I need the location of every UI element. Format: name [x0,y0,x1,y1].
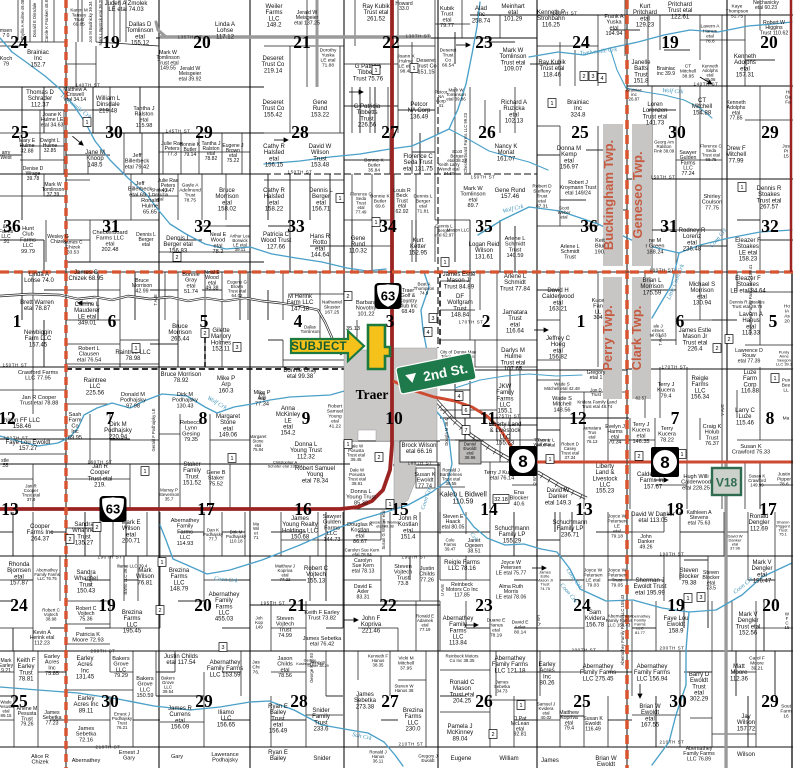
svg-text:Robert LClausenetal 76.54: Robert LClausenetal 76.54 [77,346,102,363]
svg-text:Mark VDenglerTrust etal152.56: Mark VDenglerTrust etal152.56 [736,612,761,636]
svg-text:29: 29 [195,122,213,142]
svg-text:29: 29 [761,691,779,711]
svg-text:Carol FMoore39.21: Carol FMoore39.21 [749,656,765,672]
svg-text:Patricia KMoore 72.93: Patricia KMoore 72.93 [72,632,103,644]
svg-text:1: 1 [375,220,378,226]
svg-text:Trevor LWulf etal: Trevor LWulf etal [533,438,550,448]
svg-text:34: 34 [379,216,397,236]
svg-text:Mason LLC: Mason LLC [447,228,469,233]
svg-text:NathanielSkuster167.25: NathanielSkuster167.25 [322,300,342,316]
svg-text:8: 8 [766,408,775,428]
svg-text:SawyerGuldenFarmsLLC144.73: SawyerGuldenFarmsLLC144.73 [323,514,342,543]
svg-text:BakersGroveLLC150.59: BakersGroveLLC150.59 [136,676,154,699]
svg-text:Q WY: Q WY [536,614,541,625]
svg-text:1: 1 [86,120,89,126]
svg-text:1: 1 [13,311,22,331]
svg-text:21: 21 [293,32,311,52]
svg-text:Buckingham Twp.: Buckingham Twp. [601,140,616,250]
svg-text:N AVE: N AVE [88,574,93,586]
svg-text:Jon M Budnicky 39.34: Jon M Budnicky 39.34 [88,1,93,43]
svg-text:10: 10 [385,408,403,428]
svg-text:22: 22 [382,32,400,52]
svg-text:JohKop149: JohKop149 [255,616,263,630]
svg-text:1: 1 [444,260,447,266]
svg-text:Wade SMitchell148.56: Wade SMitchell148.56 [552,396,572,413]
svg-text:8: 8 [660,453,669,472]
svg-text:GiletteMarjoryHolmes152.11: GiletteMarjoryHolmes152.11 [211,328,231,352]
svg-text:25: 25 [573,691,591,711]
svg-text:T AVE: T AVE [658,334,663,346]
svg-text:28: 28 [290,691,308,711]
svg-text:Jan R CooperTrust etal 78.88: Jan R CooperTrust etal 78.88 [20,395,59,407]
svg-text:Brian WEwoldt: Brian WEwoldt [595,756,617,768]
svg-text:2: 2 [159,608,162,614]
svg-text:JasonChildsetal78.56: JasonChildsetal78.56 [277,656,293,679]
svg-text:2: 2 [347,294,350,300]
svg-text:27: 27 [381,691,399,711]
svg-text:210TH ST: 210TH ST [399,742,424,747]
svg-text:Kridera Family LandTrust etal: Kridera Family LandTrust etal 48.74 [577,400,617,410]
svg-text:150TH ST: 150TH ST [471,175,496,180]
svg-text:Iliamo LLC 39.4: Iliamo LLC 39.4 [117,564,148,569]
svg-text:Florence CSeda Trustetal 131.7: Florence CSeda Trustetal 131.75 [403,154,433,172]
svg-text:Abernathey: Abernathey [72,758,101,764]
svg-text:JamesSebetka273.38: JamesSebetka273.38 [354,692,377,710]
svg-text:Terry JKuceraetal146.35: Terry JKuceraetal146.35 [632,422,651,445]
svg-text:KuceFanLL304: KuceFanLL304 [592,298,605,321]
svg-text:200TH ST: 200TH ST [660,646,685,651]
svg-text:BarbaraNovotny101.22: BarbaraNovotny101.22 [356,300,377,317]
svg-text:5: 5 [769,311,778,331]
svg-text:DeseretTrust Co151.15: DeseretTrust Co151.15 [415,58,436,75]
svg-text:Robert CVojtech155.13: Robert CVojtech155.13 [304,566,329,584]
svg-text:Kathleen AStevensetal 75.63: Kathleen AStevensetal 75.63 [686,510,712,527]
svg-text:Donald E Dinsdale: Donald E Dinsdale [32,2,37,37]
svg-text:Eugene: Eugene [451,756,472,762]
svg-text:190TH ST: 190TH ST [660,552,685,557]
svg-text:63: 63 [381,289,395,304]
svg-text:Mark L Bystrck etal 39.25: Mark L Bystrck etal 39.25 [98,0,103,46]
svg-text:2: 2 [492,732,495,738]
svg-text:Mark WTomlinsonetal 39.86: Mark WTomlinsonetal 39.86 [446,88,466,102]
svg-text:27: 27 [381,122,399,142]
svg-text:1: 1 [389,502,392,508]
svg-text:Susan KEwoldt116.49: Susan KEwoldt116.49 [583,716,603,733]
svg-text:AbernatheyFamily FarmsLLC 76.8: AbernatheyFamily FarmsLLC 76.89 [683,746,715,763]
svg-text:2: 2 [728,337,731,343]
svg-text:Nechanickyetal 60.23: Nechanickyetal 60.23 [753,0,779,11]
svg-text:82.57: 82.57 [636,396,648,401]
svg-text:SUBJECT: SUBJECT [291,341,347,353]
svg-text:Reinbeck MotorsCo Inc 38.35: Reinbeck MotorsCo Inc 38.35 [446,654,480,664]
svg-text:AbernatheyFamily FarmsLLC 121.: AbernatheyFamily FarmsLLC 121.18 [492,656,528,674]
svg-text:JasChi76.: JasChi76. [252,660,260,676]
svg-text:2: 2 [69,537,72,543]
svg-text:1: 1 [774,376,777,382]
svg-text:1: 1 [687,596,690,602]
svg-text:210TH ST: 210TH ST [96,745,121,750]
svg-text:1: 1 [741,185,744,191]
svg-text:170TH ST: 170TH ST [459,320,484,325]
svg-text:RobertSamuelYoungetal41.22: RobertSamuelYoungetal41.22 [327,404,343,430]
svg-text:1: 1 [144,469,147,475]
svg-text:1: 1 [520,703,523,709]
svg-text:Sherman JEwoldt Trustetal 195.: Sherman JEwoldt Trustetal 195.99 [633,578,666,596]
svg-text:32.18: 32.18 [494,497,508,503]
svg-text:Geneseo Twp.: Geneseo Twp. [630,151,645,238]
svg-text:KeitBlur190.: KeitBlur190. [595,238,606,255]
svg-text:Darlys MHulmeTrust etal107.65: Darlys MHulmeTrust etal107.65 [501,348,526,372]
svg-text:JKWFamilyFarmsLLC155.1: JKWFamilyFarmsLLC155.1 [496,384,514,414]
svg-text:150TH ST: 150TH ST [651,175,676,180]
svg-text:Judeh A ZmolekLE etal 74.03: Judeh A ZmolekLE etal 74.03 [105,1,149,13]
svg-text:Hugh WilliCalderwoodetal 228.2: Hugh WilliCalderwoodetal 228.25 [681,474,711,491]
svg-text:31: 31 [660,216,678,236]
svg-text:1: 1 [161,560,164,566]
svg-text:Ma: Ma [783,416,790,422]
svg-text:Gerald F Podhajsky LE: Gerald F Podhajsky LE [151,408,156,451]
svg-text:2: 2 [378,455,381,461]
svg-text:Jon DTrust: Jon DTrust [590,388,601,398]
svg-text:4: 4 [601,76,604,82]
svg-text:GeneRund153.22: GeneRund153.22 [311,100,330,118]
svg-text:29: 29 [761,122,779,142]
svg-text:190TH ST: 190TH ST [402,555,427,560]
svg-text:V AVE: V AVE [720,404,725,416]
svg-text:stle.55: stle.55 [1,458,9,469]
svg-text:Corrine LMaudererLE etal349.01: Corrine LMaudererLE etal349.01 [74,302,100,326]
svg-text:17: 17 [197,499,215,519]
svg-text:William LDinsdale219.48: William LDinsdale219.48 [96,96,121,114]
svg-text:Joane KHulme LEetal 34.63: Joane KHulme LEetal 34.63 [41,112,64,129]
svg-text:35: 35 [475,216,493,236]
svg-text:PritchardTrust etal122.61: PritchardTrust etal122.61 [668,2,693,20]
svg-text:Arlene LSchmidtTrust140.59: Arlene LSchmidtTrust140.59 [505,236,526,259]
svg-text:John FKopriva221.46: John FKopriva221.46 [361,616,382,634]
svg-text:3: 3 [386,311,395,331]
svg-text:150TH ST: 150TH ST [288,170,313,175]
svg-text:Dougla M 38.4: Dougla M 38.4 [444,418,449,446]
svg-text:Abernathey Family Farms LLC 15: Abernathey Family Farms LLC 155.43 [620,594,625,665]
svg-text:3: 3 [700,595,703,601]
svg-text:U AVE: U AVE [440,584,445,596]
svg-text:26: 26 [475,691,493,711]
svg-text:MarkWilson76.81: MarkWilson76.81 [136,568,154,586]
svg-text:Ryan EBailey: Ryan EBailey [268,750,288,762]
svg-text:T AVE: T AVE [153,294,158,306]
svg-text:23: 23 [475,595,493,615]
svg-text:AbernatheyFamily FarmsLLC 76.7: AbernatheyFamily FarmsLLC 76.75 [34,567,59,581]
svg-text:BakersGroveLLC79.29: BakersGroveLLC79.29 [112,656,130,679]
svg-text:CarolynSue Kernetal 78.13: CarolynSue Kernetal 78.13 [352,558,375,575]
svg-text:Checkerboard Farms LLC 99.23: Checkerboard Farms LLC 99.23 [463,112,468,172]
svg-text:140TH ST: 140TH ST [694,82,719,87]
svg-text:Susan G Warner etal: Susan G Warner etal [381,510,386,549]
svg-text:Nancy KMonat161.07: Nancy KMonat161.07 [495,144,518,162]
svg-text:28: 28 [291,122,309,142]
svg-text:William: William [499,756,518,762]
svg-text:Justin Childsetal 117.54: Justin Childsetal 117.54 [164,654,198,666]
svg-text:145TH ST: 145TH ST [166,129,191,134]
svg-text:200TH ST: 200TH ST [572,648,597,653]
svg-text:30: 30 [669,691,687,711]
svg-text:22: 22 [379,595,397,615]
svg-text:Clark Twp.: Clark Twp. [629,306,644,371]
svg-text:33: 33 [287,216,305,236]
svg-text:29: 29 [195,691,213,711]
svg-text:24: 24 [10,595,28,615]
svg-text:2: 2 [96,525,99,531]
svg-text:19: 19 [98,595,116,615]
svg-text:GeneRund110.32: GeneRund110.32 [349,236,368,254]
svg-text:4: 4 [427,330,430,336]
svg-text:PetcorNA Corp136.49: PetcorNA Corp136.49 [408,102,431,120]
svg-text:9: 9 [302,408,311,428]
svg-text:Craig KHolubTrust76.37: Craig KHolubTrust76.37 [703,424,722,447]
svg-text:3: 3 [236,345,239,351]
svg-text:Keith F EarleyTrust 73.82: Keith F EarleyTrust 73.82 [304,610,339,622]
svg-text:1: 1 [551,101,554,107]
svg-text:20: 20 [762,595,780,615]
svg-text:Wilson: Wilson [737,752,755,758]
svg-text:1: 1 [577,311,586,331]
svg-text:30: 30 [101,691,119,711]
svg-text:160TH ST: 160TH ST [650,268,675,273]
svg-text:George K 27.93: George K 27.93 [309,653,314,683]
svg-text:DeseretTrust Co155.42: DeseretTrust Co155.42 [262,100,285,118]
svg-text:1: 1 [681,452,684,458]
svg-text:James EstleMason JrTrust 84.89: James EstleMason JrTrust 84.89 [443,272,476,290]
svg-text:Reigle FarmsLLC 78.16: Reigle FarmsLLC 78.16 [444,560,480,572]
svg-text:SniderFamilyTrust233.6: SniderFamilyTrust233.6 [312,708,330,732]
svg-text:Gary: Gary [171,754,183,760]
svg-text:Neal EWoodetal49.38: Neal EWoodetal49.38 [204,270,220,292]
svg-text:Frank AYuskaetal194.94: Frank AYuskaetal194.94 [604,14,624,37]
svg-text:195TH ST: 195TH ST [261,601,286,606]
svg-text:8: 8 [518,452,527,471]
svg-text:LawerancePodhajsky: LawerancePodhajsky [211,752,238,764]
svg-text:SawyerGuldenFarmsLLC77.24: SawyerGuldenFarmsLLC77.24 [679,150,697,177]
svg-text:1: 1 [413,66,416,72]
svg-text:JustinChilds77.26: JustinChilds77.26 [419,566,435,583]
svg-text:AbernatheyFamily FarmsLLC 153.: AbernatheyFamily FarmsLLC 153.59 [207,660,243,678]
svg-text:AbernatheyFamily FarmsLLC 275.: AbernatheyFamily FarmsLLC 275.45 [580,664,616,682]
svg-text:6: 6 [108,311,117,331]
svg-text:185TH ST: 185TH ST [408,461,433,466]
svg-text:1: 1 [347,442,350,448]
svg-text:Traer: Traer [356,387,389,402]
svg-text:19: 19 [661,32,679,52]
svg-text:130TH ST: 130TH ST [406,34,431,39]
svg-text:Vicki MMitchell37.95: Vicki MMitchell37.95 [398,656,414,672]
svg-text:Linda ALohse117.12: Linda ALohse117.12 [215,22,235,40]
svg-text:Tantha JRalstonetal115.98: Tantha JRalstonetal115.98 [133,106,154,129]
svg-text:StevenBlocker79.38: StevenBlocker79.38 [679,568,699,586]
svg-text:Snider: Snider [313,756,330,762]
svg-text:Iliamo LLC 39.4: Iliamo LLC 39.4 [123,565,128,595]
svg-text:1: 1 [231,456,234,462]
svg-text:1: 1 [339,196,342,202]
svg-text:36: 36 [580,216,598,236]
svg-text:135TH ST: 135TH ST [178,35,203,40]
svg-text:6: 6 [465,408,468,414]
svg-text:30: 30 [105,122,123,142]
svg-text:200TH ST: 200TH ST [91,649,116,654]
svg-text:Brainiacinc 39.9: Brainiacinc 39.9 [657,66,676,77]
svg-text:James: James [541,758,559,764]
svg-text:AbernatheyFamily FarmsLLC 156.: AbernatheyFamily FarmsLLC 156.94 [634,664,670,682]
svg-text:210TH ST: 210TH ST [660,740,685,745]
svg-text:DeseretTrust Co219.14: DeseretTrust Co219.14 [262,56,285,74]
svg-text:150TH ST: 150TH ST [3,363,28,368]
svg-text:2: 2 [176,255,179,261]
svg-text:Mary EHulme32.88: Mary EHulme32.88 [19,138,36,155]
svg-text:V18: V18 [716,476,738,490]
svg-text:HoIAAs20: HoIAAs20 [784,304,790,325]
svg-text:Brock Wilsonetal 66.16: Brock Wilsonetal 66.16 [401,443,436,455]
svg-text:Jerald WMeisgeieretal 39.92: Jerald WMeisgeieretal 39.92 [179,66,202,83]
svg-text:1: 1 [549,457,552,463]
svg-text:Abernathey Family Farms LLC 15: Abernathey Family Farms LLC 158.41 [748,264,753,335]
svg-text:Gene BStaker75.52: Gene BStaker75.52 [207,470,226,487]
svg-text:2: 2 [716,346,719,352]
svg-text:DanielEwoldtetal38.96: DanielEwoldtetal38.96 [463,442,477,461]
svg-text:7: 7 [465,428,468,434]
svg-text:1: 1 [135,346,138,352]
svg-text:HuntClubFarmsLLC99.79: HuntClubFarmsLLC99.79 [20,226,36,255]
svg-text:23: 23 [475,32,493,52]
svg-text:KubikTrustetal79.77: KubikTrustetal79.77 [440,6,454,29]
svg-text:StevenVojtechTrust74.99: StevenVojtechTrust74.99 [276,616,294,639]
svg-text:2: 2 [583,74,586,80]
svg-text:19: 19 [667,595,685,615]
svg-text:24: 24 [572,32,590,52]
svg-text:Drew FMitchell77.99: Drew FMitchell77.99 [726,146,746,164]
svg-text:4: 4 [458,394,461,400]
svg-text:Jane MKnoop148.5: Jane MKnoop148.5 [85,150,105,168]
svg-text:2: 2 [204,331,207,337]
svg-text:Alice RChizek: Alice RChizek [31,754,49,766]
svg-text:21: 21 [288,595,306,615]
svg-text:13: 13 [1,499,19,519]
svg-text:19: 19 [102,32,120,52]
svg-text:EarleyAcresInc75.85: EarleyAcresInc75.85 [44,654,60,677]
svg-text:Jerald WMeisgeieretal 137.25: Jerald WMeisgeieretal 137.25 [294,10,320,27]
svg-text:Phyllis A Hulme 49.08: Phyllis A Hulme 49.08 [20,0,25,40]
svg-text:63: 63 [106,502,120,517]
svg-text:Bonnie Grayetal 99.38: Bonnie Grayetal 99.38 [283,368,316,380]
svg-text:RonaldDengler112.69: RonaldDengler112.69 [748,514,769,532]
svg-text:170TH ST: 170TH ST [662,365,687,370]
svg-text:Susan KCrawford149.99: Susan KCrawford149.99 [748,474,766,488]
svg-text:32: 32 [761,216,779,236]
svg-text:190TH ST: 190TH ST [98,555,123,560]
svg-text:3: 3 [592,74,595,80]
svg-text:BakersGroveLLC39.54: BakersGroveLLC39.54 [161,676,175,695]
svg-text:Carole K Franken 48.88: Carole K Franken 48.88 [44,0,49,42]
svg-text:1: 1 [375,68,378,74]
svg-text:Brian LMorrison175.59: Brian LMorrison175.59 [640,278,663,296]
svg-text:25: 25 [571,122,589,142]
svg-text:3: 3 [432,316,435,322]
svg-text:3: 3 [222,645,225,651]
svg-text:Steven WHanus 38: Steven WHanus 38 [394,684,414,694]
svg-text:2: 2 [638,454,641,460]
svg-text:13: 13 [575,499,593,519]
svg-text:26: 26 [478,122,496,142]
svg-text:Brett Warrenetal 78.87: Brett Warrenetal 78.87 [20,300,54,312]
svg-text:5: 5 [200,311,209,331]
